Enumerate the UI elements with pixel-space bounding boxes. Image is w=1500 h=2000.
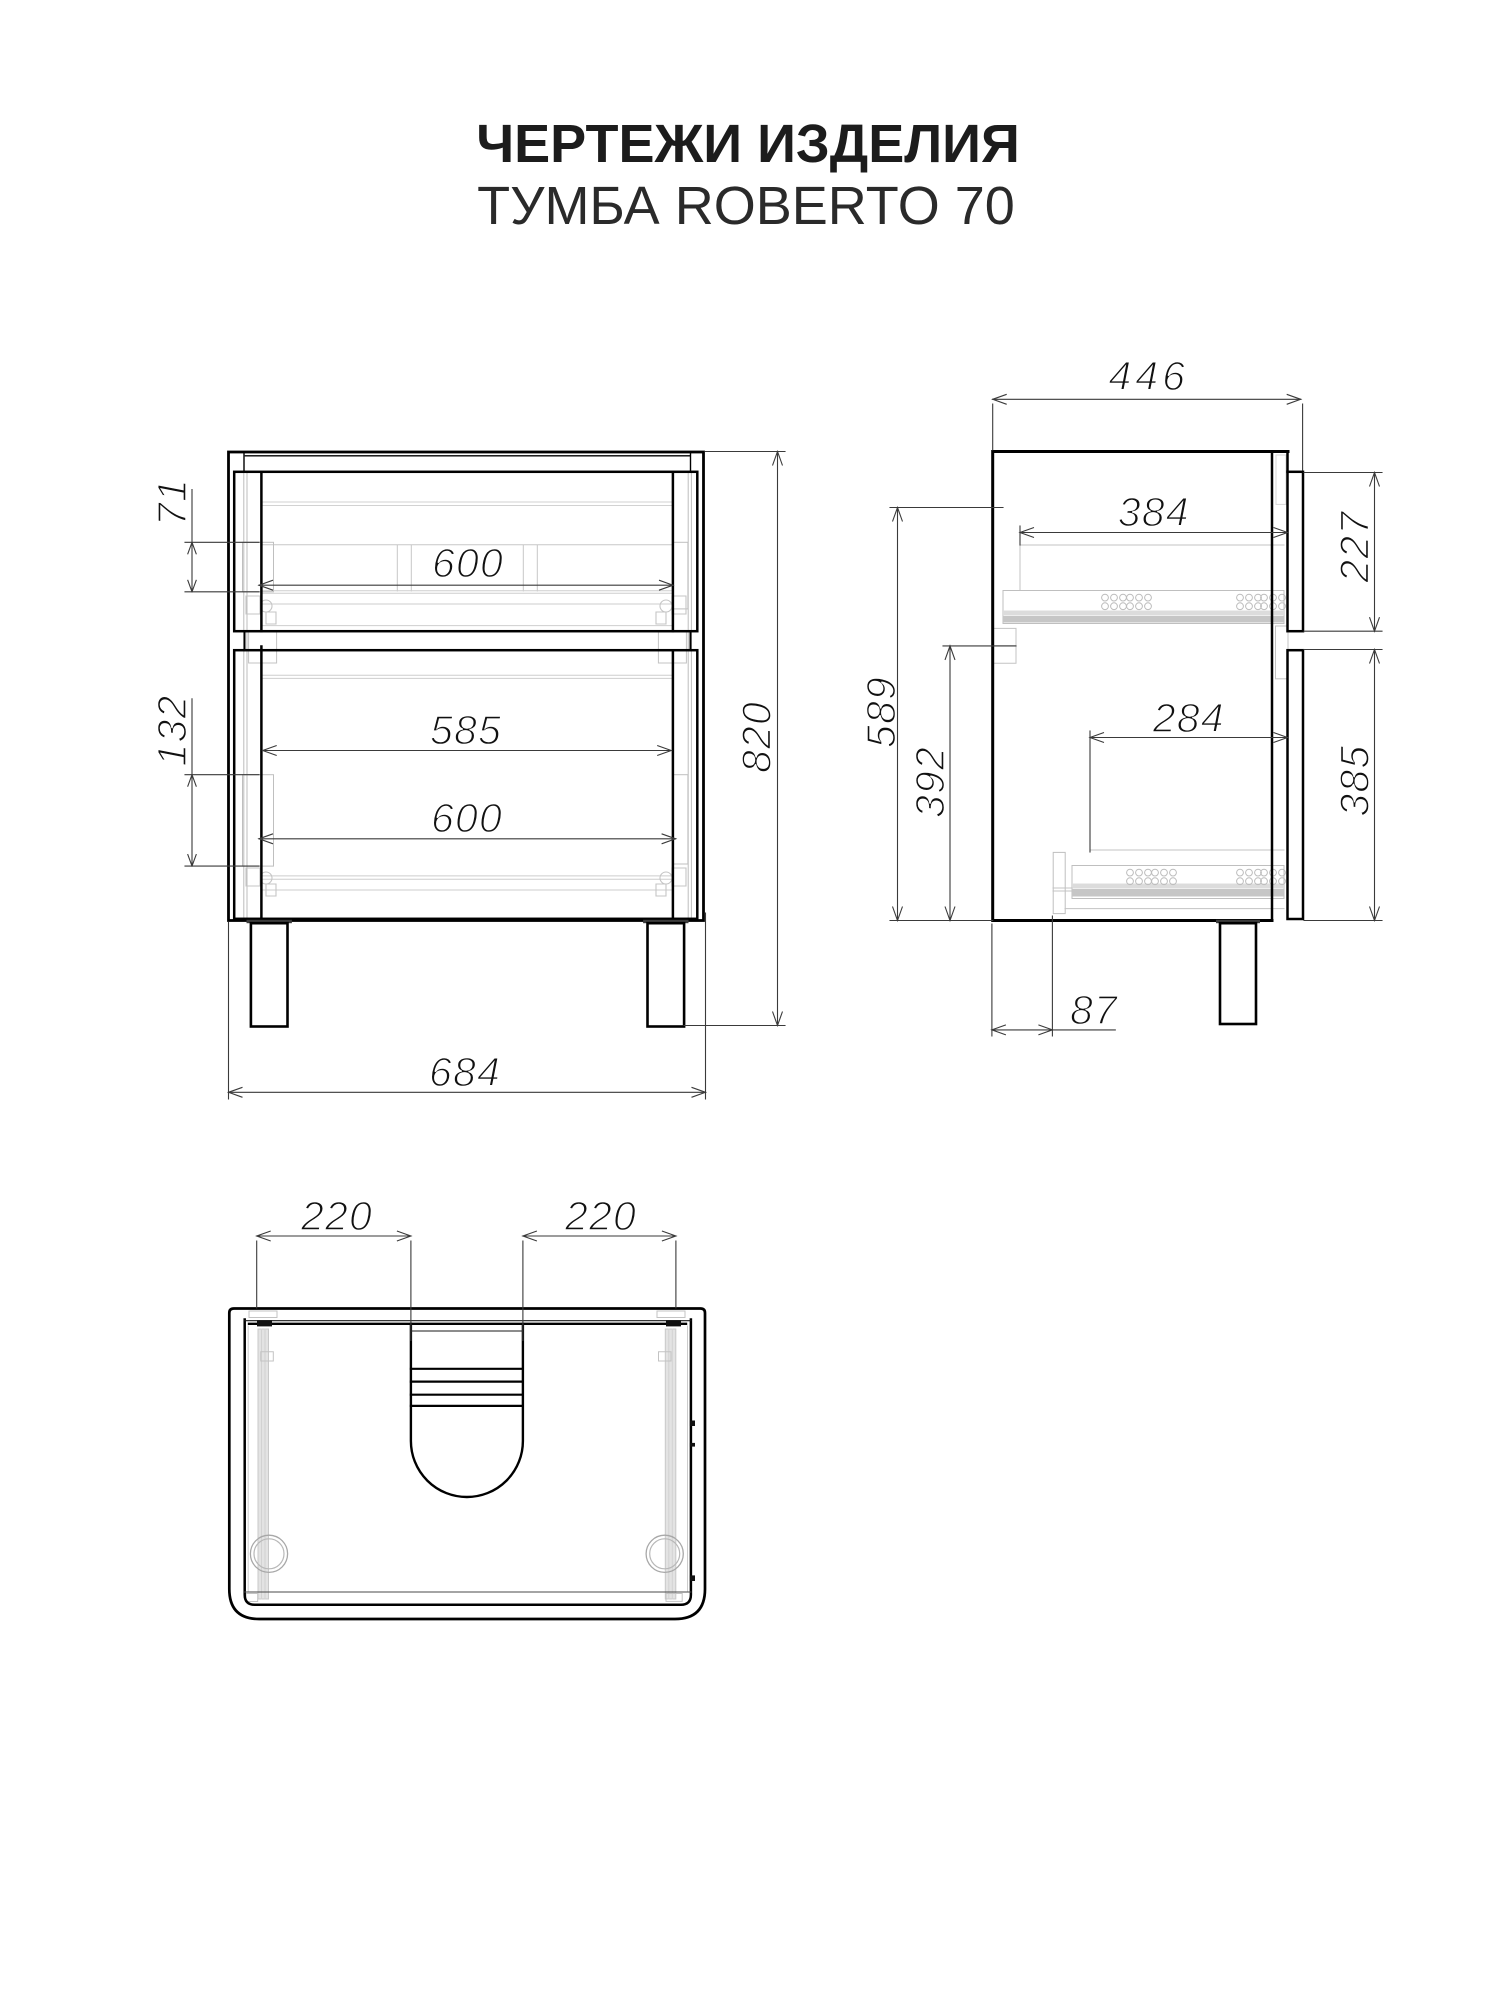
svg-text:ТУМБА ROBERTO 70: ТУМБА ROBERTO 70 [477, 176, 1015, 236]
svg-text:684: 684 [429, 1049, 501, 1095]
svg-text:446: 446 [1108, 353, 1188, 399]
svg-text:600: 600 [431, 795, 503, 841]
svg-text:ЧЕРТЕЖИ ИЗДЕЛИЯ: ЧЕРТЕЖИ ИЗДЕЛИЯ [476, 114, 1020, 174]
svg-text:589: 589 [858, 676, 904, 748]
svg-text:87: 87 [1070, 987, 1119, 1033]
svg-text:600: 600 [432, 540, 504, 586]
svg-text:71: 71 [149, 478, 195, 526]
svg-text:820: 820 [734, 701, 780, 773]
svg-text:585: 585 [430, 707, 502, 753]
svg-text:284: 284 [1152, 695, 1225, 741]
svg-text:385: 385 [1332, 745, 1378, 817]
svg-text:132: 132 [149, 694, 195, 766]
svg-text:384: 384 [1118, 489, 1190, 535]
svg-text:392: 392 [907, 746, 953, 818]
svg-text:220: 220 [564, 1193, 637, 1239]
svg-text:220: 220 [300, 1193, 373, 1239]
svg-text:227: 227 [1332, 510, 1378, 584]
